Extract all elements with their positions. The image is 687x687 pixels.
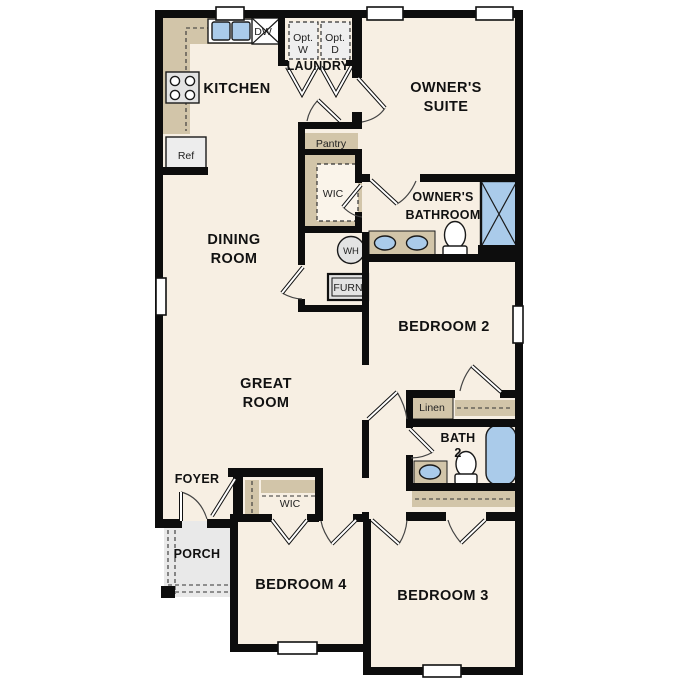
bedroom3-label: BEDROOM 3 <box>397 588 488 604</box>
owners-toilet <box>443 222 467 257</box>
window-bedroom2 <box>513 306 523 343</box>
kitchen-label: KITCHEN <box>203 81 270 97</box>
great-room-label-1: GREAT <box>240 376 292 392</box>
window-dining <box>156 278 166 315</box>
porch-post <box>161 586 175 598</box>
wall-bath2-bottom <box>406 483 518 491</box>
wall-column-left-upper <box>298 122 305 265</box>
foyer-closet-strip <box>245 480 259 519</box>
wall-bath-door-stub <box>362 174 370 182</box>
porch-label: PORCH <box>174 547 221 561</box>
window-owners-1 <box>367 7 403 20</box>
floorplan-canvas: KITCHEN LAUNDRY OWNER'S SUITE OWNER'S BA… <box>0 0 687 687</box>
window-kitchen <box>216 7 244 20</box>
wall-greatroom-bed2-upper <box>362 312 369 365</box>
wall-pantry-top <box>298 122 362 129</box>
sink-basin-left <box>212 22 230 40</box>
wall-top <box>155 10 523 18</box>
owners-sink-left <box>375 236 396 250</box>
wall-bath2-top <box>406 419 518 427</box>
refrigerator-label: Ref <box>178 150 194 162</box>
great-room-label-2: ROOM <box>243 395 290 411</box>
bath2-tub <box>486 425 516 485</box>
water-heater-label: WH <box>343 246 359 257</box>
burner-3 <box>170 90 179 99</box>
wall-wic-right-upper <box>355 149 362 183</box>
wall-wic4-right <box>315 468 323 521</box>
wall-utility-right <box>362 232 369 312</box>
wall-wic-bottom <box>298 226 362 233</box>
linen-label: Linen <box>419 402 445 414</box>
wall-left <box>155 10 163 528</box>
range <box>166 72 199 103</box>
owners-shower <box>481 181 517 247</box>
foyer-closet <box>245 480 259 519</box>
owners-toilet-bowl <box>445 222 466 249</box>
wall-bedroom4-left <box>230 519 238 652</box>
pantry-label: Pantry <box>316 138 347 150</box>
bath2-label-2: 2 <box>454 446 461 460</box>
bedroom2-label: BEDROOM 2 <box>398 319 489 335</box>
sink-basin-right <box>232 22 250 40</box>
burner-1 <box>170 76 179 85</box>
window-owners-2 <box>476 7 513 20</box>
owners-bathroom-label-1: OWNER'S <box>412 190 473 204</box>
floorplan-svg: KITCHEN LAUNDRY OWNER'S SUITE OWNER'S BA… <box>0 0 687 687</box>
bath2-label-1: BATH <box>441 431 476 445</box>
owners-wic-label: WIC <box>323 188 344 200</box>
opt-dryer-label-1: Opt. <box>325 32 345 44</box>
bedroom3-closet <box>412 491 515 507</box>
opt-washer-label-2: W <box>298 44 308 56</box>
wall-kitchen-stub <box>160 167 208 175</box>
burner-2 <box>185 76 194 85</box>
dining-room-label-1: DINING <box>207 232 260 248</box>
bedroom2-closet <box>455 400 515 416</box>
wall-bed4-top-left <box>230 514 272 522</box>
wall-bedroom2-bottom-left <box>406 390 455 398</box>
wall-greatroom-bed2-lower <box>362 420 369 478</box>
wall-kitchen-laundry <box>278 18 285 64</box>
wall-under-shower <box>478 245 517 261</box>
bath2-sink <box>420 465 441 479</box>
owners-bathroom-label-2: BATHROOM <box>405 208 480 222</box>
wall-bedroom2-bottom-right <box>500 390 515 398</box>
wall-laundry-suite <box>352 10 362 78</box>
burner-4 <box>185 90 194 99</box>
owners-suite-label-1: OWNER'S <box>410 80 482 96</box>
dining-room-label-2: ROOM <box>211 251 258 267</box>
window-bedroom4 <box>278 642 317 654</box>
window-bedroom3 <box>423 665 461 677</box>
furnace-label: FURN <box>333 282 362 294</box>
bedroom4-wic-label: WIC <box>280 498 301 510</box>
owners-suite-label-2: SUITE <box>424 99 469 115</box>
bath2-toilet-tank <box>455 474 477 484</box>
wall-utility-bottom <box>298 305 368 312</box>
wall-suite-bathroom <box>420 174 515 182</box>
opt-dryer-label-2: D <box>331 44 339 56</box>
wall-bed3-top-left <box>406 512 446 521</box>
bedroom4-label: BEDROOM 4 <box>255 577 346 593</box>
bedroom4-wic-shelf <box>261 480 317 493</box>
dishwasher-label: DW <box>254 26 272 38</box>
wall-bed3-top-right <box>486 512 518 521</box>
opt-washer-label-1: Opt. <box>293 32 313 44</box>
wall-foyer-bottom-left <box>155 519 182 528</box>
wall-bed4-top-mid <box>307 514 319 522</box>
owners-sink-right <box>407 236 428 250</box>
laundry-label: LAUNDRY <box>287 59 350 73</box>
foyer-label: FOYER <box>175 472 220 486</box>
kitchen-sink <box>208 19 253 43</box>
